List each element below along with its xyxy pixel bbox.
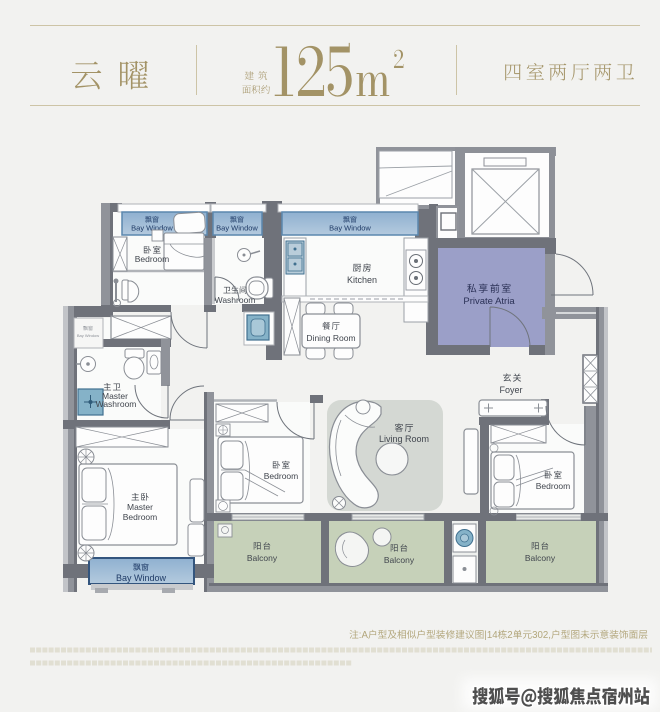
svg-text:Master: Master (127, 502, 153, 512)
svg-text:Balcony: Balcony (525, 553, 556, 563)
svg-text:Kitchen: Kitchen (347, 275, 377, 285)
svg-text:Bay Window: Bay Window (116, 573, 167, 583)
svg-text:Private Atria: Private Atria (463, 296, 515, 307)
svg-text:Bedroom: Bedroom (536, 481, 571, 491)
svg-text:Washroom: Washroom (215, 295, 256, 305)
svg-text:Balcony: Balcony (384, 555, 415, 565)
svg-text:Bedroom: Bedroom (135, 254, 170, 264)
svg-text:302,: 302, (532, 630, 551, 641)
svg-text:|14: |14 (484, 630, 498, 641)
svg-text:Foyer: Foyer (499, 385, 522, 395)
svg-text:Bay Window: Bay Window (216, 224, 258, 233)
svg-text:Dining Room: Dining Room (306, 333, 355, 343)
svg-text:Washroom: Washroom (96, 399, 137, 409)
svg-text:2: 2 (507, 630, 512, 641)
svg-text:Living Room: Living Room (379, 434, 429, 444)
svg-text::A: :A (359, 630, 369, 641)
svg-text:Bedroom: Bedroom (264, 471, 299, 481)
svg-text:Bay Window: Bay Window (329, 224, 371, 233)
svg-text:Bedroom: Bedroom (123, 512, 158, 522)
svg-text:Bay Window: Bay Window (77, 333, 99, 338)
svg-text:Balcony: Balcony (247, 553, 278, 563)
